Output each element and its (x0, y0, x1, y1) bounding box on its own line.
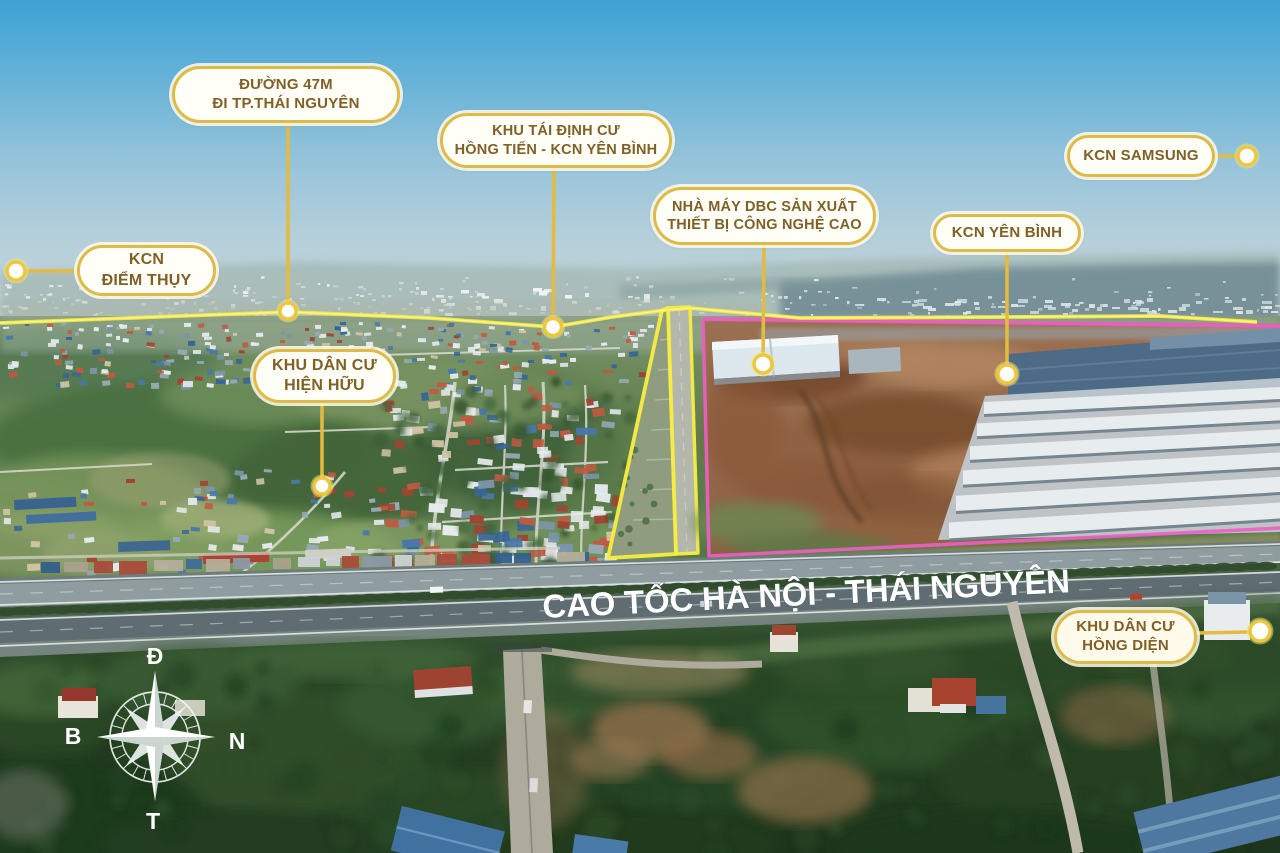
svg-text:N: N (229, 728, 246, 754)
svg-text:Đ: Đ (147, 643, 164, 669)
svg-text:T: T (146, 808, 160, 834)
svg-text:B: B (65, 723, 82, 749)
